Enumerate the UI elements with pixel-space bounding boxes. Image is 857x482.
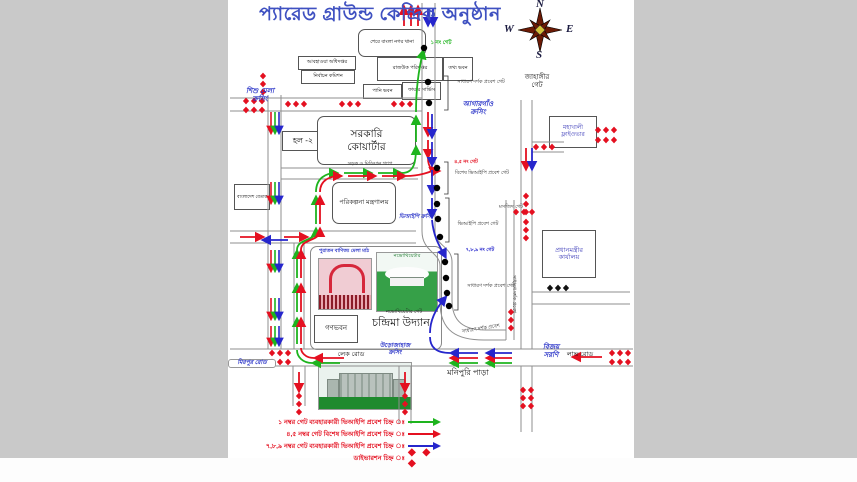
gate-label-vip: ভিআইপি প্রবেশ গেট bbox=[452, 222, 504, 228]
legend-row-red: ৪,৫ নম্বর গেট বিশেষ ভিআইপি প্রবেশ চিহ্ন … bbox=[246, 428, 446, 440]
compass-north-label: N bbox=[536, 0, 544, 10]
gate45-number-label: ৪,৫ নং গেট bbox=[448, 160, 484, 166]
map-svg bbox=[0, 0, 857, 482]
gate-label-general-top: সাধারণ দর্শক প্রবেশ গেট bbox=[450, 80, 512, 86]
legend-label-red: ৪,৫ নম্বর গেট বিশেষ ভিআইপি প্রবেশ চিহ্ন … bbox=[286, 429, 405, 440]
legend: ১ নম্বর গেট ব্যবহারকারী ভিআইপি প্রবেশ চি… bbox=[246, 416, 446, 464]
legend-label-green: ১ নম্বর গেট ব্যবহারকারী ভিআইপি প্রবেশ চি… bbox=[278, 417, 405, 428]
traffic-map-page: প্যারেড গ্রাউন্ড কেন্দ্রিক অনুষ্ঠান N S … bbox=[0, 0, 857, 482]
gate789-number-label: ৭,৮,৯ নং গেট bbox=[458, 248, 502, 254]
legend-label-blue: ৭,৮,৯ নম্বর গেট ব্যবহারকারী ভিআইপি প্রবে… bbox=[266, 441, 405, 452]
legend-row-diversion: ডাইভারশন চিহ্ন ঃ ◆ ◆ ◆ bbox=[246, 452, 446, 464]
chandrima-label: চন্দ্রিমা উদ্যান bbox=[358, 317, 444, 329]
gate-label-general-side: সাধারণ দর্শক প্রবেশ bbox=[511, 264, 517, 324]
gate-label-mosque: মসজিদ গেট bbox=[494, 205, 528, 211]
legend-green-arrow-icon bbox=[408, 418, 446, 426]
compass-south-label: S bbox=[536, 49, 542, 61]
median-gap-note: সড়ক ও মিডিয়ান গ্যাপ bbox=[330, 162, 410, 168]
legend-row-green: ১ নম্বর গেট ব্যবহারকারী ভিআইপি প্রবেশ চি… bbox=[246, 416, 446, 428]
legend-label-diversion: ডাইভারশন চিহ্ন ঃ bbox=[354, 453, 405, 464]
page-title: প্যারেড গ্রাউন্ড কেন্দ্রিক অনুষ্ঠান bbox=[238, 0, 522, 32]
diversion-marks bbox=[243, 73, 631, 416]
compass-east-label: E bbox=[566, 23, 573, 35]
crossing-vip: ভিআইপি ক্রসিং bbox=[390, 214, 442, 220]
left-road-lane-arrows bbox=[271, 112, 279, 344]
crossing-urojahaj: উড়োজাহাজ ক্রসিং bbox=[372, 343, 418, 356]
gate-label-special-vip: বিশেষ ভিআইপি প্রবেশ গেট bbox=[450, 171, 514, 177]
compass-rose bbox=[518, 8, 562, 52]
crossing-agargaon: আগারগাঁও ক্রসিং bbox=[448, 101, 508, 116]
road-mirpur-road: মিরপুর রোড bbox=[228, 359, 276, 368]
gate1-number-label: ১ নং গেট bbox=[426, 40, 456, 46]
road-love-road: লাভ রোড bbox=[562, 351, 598, 358]
area-monipuri-para: মনিপুরি পাড়া bbox=[436, 369, 500, 378]
gate-markers bbox=[421, 45, 452, 309]
road-jahangir-gate: জাহাঙ্গীর গেট bbox=[514, 74, 560, 89]
road-lake-road: লেক রোড bbox=[333, 351, 369, 358]
crossing-shishu-mela: শিশু মেলা ক্রসিং bbox=[231, 88, 289, 103]
novo-gate-label: নভোথিয়েটার গেট bbox=[372, 310, 436, 316]
legend-red-arrow-icon bbox=[408, 430, 446, 438]
legend-diversion-diamonds-icon: ◆ ◆ ◆ bbox=[408, 447, 446, 469]
old-fair-caption: পুরাতন বাণিজ্য মেলা মাঠ bbox=[314, 249, 374, 255]
